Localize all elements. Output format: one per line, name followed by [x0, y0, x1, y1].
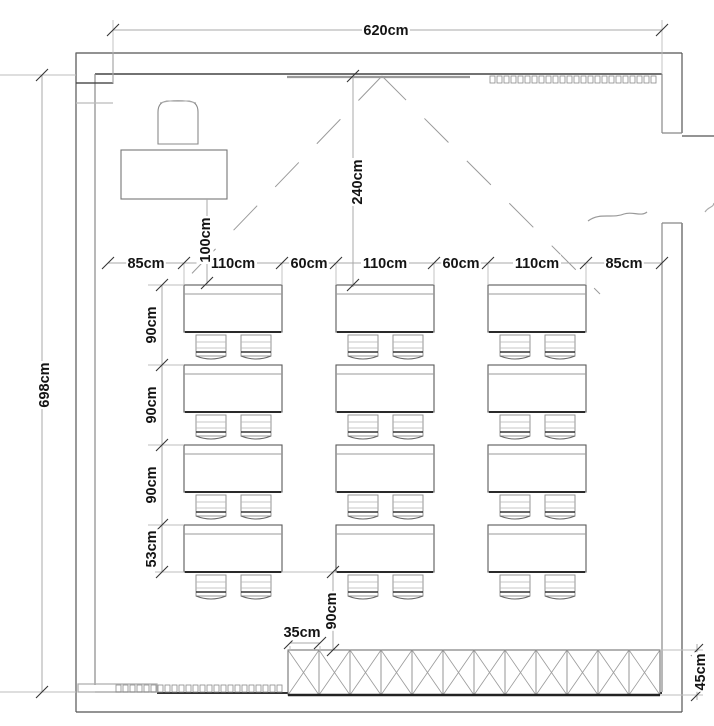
chair-seat-curve	[545, 516, 575, 519]
radiator-tick	[116, 685, 121, 692]
chair	[500, 495, 530, 519]
radiator-tick	[193, 685, 198, 692]
chair	[241, 575, 271, 599]
dim-label: 110cm	[361, 255, 409, 273]
chair-seat-curve	[500, 516, 530, 519]
radiator-tick	[497, 76, 502, 83]
radiator-tick	[137, 685, 142, 692]
chair	[241, 335, 271, 359]
radiator-tick	[200, 685, 205, 692]
radiator-tick	[609, 76, 614, 83]
chair-seat-curve	[348, 596, 378, 599]
chair-seat-curve	[241, 356, 271, 359]
dimension-ticks	[36, 24, 703, 701]
desk-grid	[184, 285, 586, 599]
dim-label: 110cm	[209, 255, 257, 273]
radiator-tick	[651, 76, 656, 83]
radiator-tick	[504, 76, 509, 83]
radiator-tick	[158, 685, 163, 692]
chair-seat-curve	[545, 356, 575, 359]
chair-seat-curve	[241, 436, 271, 439]
chair-seat-curve	[196, 596, 226, 599]
radiator-tick	[263, 685, 268, 692]
teacher-desk	[121, 150, 227, 199]
dim-label-text: 110cm	[515, 256, 559, 272]
dim-label-text: 53cm	[144, 530, 160, 567]
chair-seat-curve	[196, 516, 226, 519]
desk-top	[184, 365, 282, 412]
radiator-tick	[602, 76, 607, 83]
radiator-tick	[186, 685, 191, 692]
chair	[348, 335, 378, 359]
radiator-tick	[277, 685, 282, 692]
chair	[196, 415, 226, 439]
floor-plan-drawing: 620cm698cm85cm110cm60cm110cm60cm110cm85c…	[0, 0, 714, 726]
radiator-tick	[172, 685, 177, 692]
radiator-tick	[539, 76, 544, 83]
desk-top	[184, 445, 282, 492]
radiator-tick	[130, 685, 135, 692]
radiator-tick	[242, 685, 247, 692]
chair	[500, 575, 530, 599]
radiator-tick	[595, 76, 600, 83]
chair-seat-curve	[393, 356, 423, 359]
radiator-tick	[270, 685, 275, 692]
dim-label: 85cm	[126, 255, 166, 273]
chair-seat-curve	[393, 596, 423, 599]
radiator-tick	[588, 76, 593, 83]
radiator-tick	[644, 76, 649, 83]
radiator-tick	[574, 76, 579, 83]
radiator-tick	[511, 76, 516, 83]
student-desk-unit	[336, 365, 434, 439]
chair-seat-curve	[500, 356, 530, 359]
dim-label-text: 90cm	[144, 306, 160, 343]
radiator-tick	[235, 685, 240, 692]
student-desk-unit	[184, 525, 282, 599]
radiator-tick	[221, 685, 226, 692]
chair-seat-curve	[348, 516, 378, 519]
chair	[500, 415, 530, 439]
radiator-tick	[123, 685, 128, 692]
chair-seat-curve	[393, 516, 423, 519]
desk-top	[488, 525, 586, 572]
chair	[393, 415, 423, 439]
chair-seat-curve	[500, 436, 530, 439]
door-leaf-sketch	[588, 212, 647, 221]
radiator-tick	[623, 76, 628, 83]
radiator-tick	[546, 76, 551, 83]
chair-seat-curve	[545, 436, 575, 439]
radiator-tick	[144, 685, 149, 692]
chair	[393, 335, 423, 359]
chair-seat-curve	[545, 596, 575, 599]
chair-seat-curve	[348, 436, 378, 439]
dim-label-text: 60cm	[442, 256, 479, 272]
chair	[348, 495, 378, 519]
chair	[196, 495, 226, 519]
radiator-strip-bottom	[116, 685, 282, 692]
radiator-tick	[630, 76, 635, 83]
radiator-tick	[490, 76, 495, 83]
desk-top	[184, 525, 282, 572]
dim-label: 240cm	[349, 158, 367, 206]
desk-top	[488, 365, 586, 412]
sight-line-right	[382, 76, 600, 294]
dim-label: 100cm	[197, 216, 215, 264]
radiator-tick	[532, 76, 537, 83]
radiator-strip-top	[490, 76, 656, 83]
dim-label-text: 45cm	[693, 653, 709, 690]
dim-label: 90cm	[323, 591, 341, 631]
dim-label-text: 100cm	[198, 217, 214, 262]
student-desk-unit	[488, 445, 586, 519]
student-desk-unit	[184, 445, 282, 519]
dim-label: 90cm	[143, 385, 161, 425]
radiator-tick	[179, 685, 184, 692]
dim-label-text: 90cm	[144, 466, 160, 503]
chair-seat-curve	[196, 436, 226, 439]
dim-label: 110cm	[513, 255, 561, 273]
student-desk-unit	[336, 285, 434, 359]
radiator-tick	[214, 685, 219, 692]
radiator-tick	[581, 76, 586, 83]
radiator-tick	[256, 685, 261, 692]
dim-label: 85cm	[604, 255, 644, 273]
dim-label-text: 60cm	[290, 256, 327, 272]
dim-label-text: 85cm	[127, 256, 164, 272]
chair	[545, 335, 575, 359]
dim-label: 60cm	[289, 255, 329, 273]
desk-top	[488, 285, 586, 332]
dim-label-text: 35cm	[283, 625, 320, 641]
dim-label: 90cm	[143, 465, 161, 505]
chair-seat-curve	[500, 596, 530, 599]
dim-label: 60cm	[441, 255, 481, 273]
chair	[393, 575, 423, 599]
student-desk-unit	[184, 365, 282, 439]
door-leaf-sketch-right	[705, 203, 714, 212]
chair-seat-curve	[393, 436, 423, 439]
floor-plan-canvas: 620cm698cm85cm110cm60cm110cm60cm110cm85c…	[0, 0, 714, 726]
dim-label: 35cm	[282, 624, 322, 642]
chair	[545, 575, 575, 599]
chair	[196, 335, 226, 359]
desk-top	[184, 285, 282, 332]
dim-label-text: 620cm	[363, 23, 408, 39]
radiator-tick	[249, 685, 254, 692]
dim-label-text: 110cm	[211, 256, 255, 272]
student-desk-unit	[488, 365, 586, 439]
chair	[196, 575, 226, 599]
student-desk-unit	[488, 525, 586, 599]
desk-top	[336, 285, 434, 332]
radiator-tick	[567, 76, 572, 83]
desk-top	[488, 445, 586, 492]
chair	[348, 415, 378, 439]
radiator-tick	[637, 76, 642, 83]
cabinet-row	[288, 650, 660, 695]
desk-top	[336, 445, 434, 492]
student-desk-unit	[336, 525, 434, 599]
radiator-tick	[165, 685, 170, 692]
student-desk-unit	[336, 445, 434, 519]
chair	[500, 335, 530, 359]
chair	[545, 495, 575, 519]
student-desk-unit	[488, 285, 586, 359]
chair	[241, 415, 271, 439]
desk-top	[336, 525, 434, 572]
chair-seat-curve	[196, 356, 226, 359]
chair	[545, 415, 575, 439]
dim-label-text: 240cm	[350, 159, 366, 204]
dim-label: 90cm	[143, 305, 161, 345]
dim-label-text: 85cm	[605, 256, 642, 272]
dim-label-text: 90cm	[324, 592, 340, 629]
chair-seat-curve	[348, 356, 378, 359]
radiator-tick	[207, 685, 212, 692]
chair	[241, 495, 271, 519]
radiator-tick	[518, 76, 523, 83]
radiator-tick	[525, 76, 530, 83]
radiator-tick	[560, 76, 565, 83]
radiator-tick	[151, 685, 156, 692]
dim-label: 620cm	[362, 22, 410, 40]
chair-seat-curve	[241, 596, 271, 599]
radiator-tick	[228, 685, 233, 692]
student-desk-unit	[184, 285, 282, 359]
radiator-tick	[553, 76, 558, 83]
desk-top	[336, 365, 434, 412]
dim-label: 698cm	[36, 361, 54, 409]
chair-seat-curve	[241, 516, 271, 519]
chair	[393, 495, 423, 519]
teacher-chair	[158, 101, 198, 144]
dim-label-text: 110cm	[363, 256, 407, 272]
chair	[348, 575, 378, 599]
dim-label: 45cm	[692, 652, 710, 692]
dim-label: 53cm	[143, 529, 161, 569]
dim-label-text: 90cm	[144, 386, 160, 423]
dim-label-text: 698cm	[37, 362, 53, 407]
teacher-zone	[121, 101, 227, 200]
radiator-tick	[616, 76, 621, 83]
